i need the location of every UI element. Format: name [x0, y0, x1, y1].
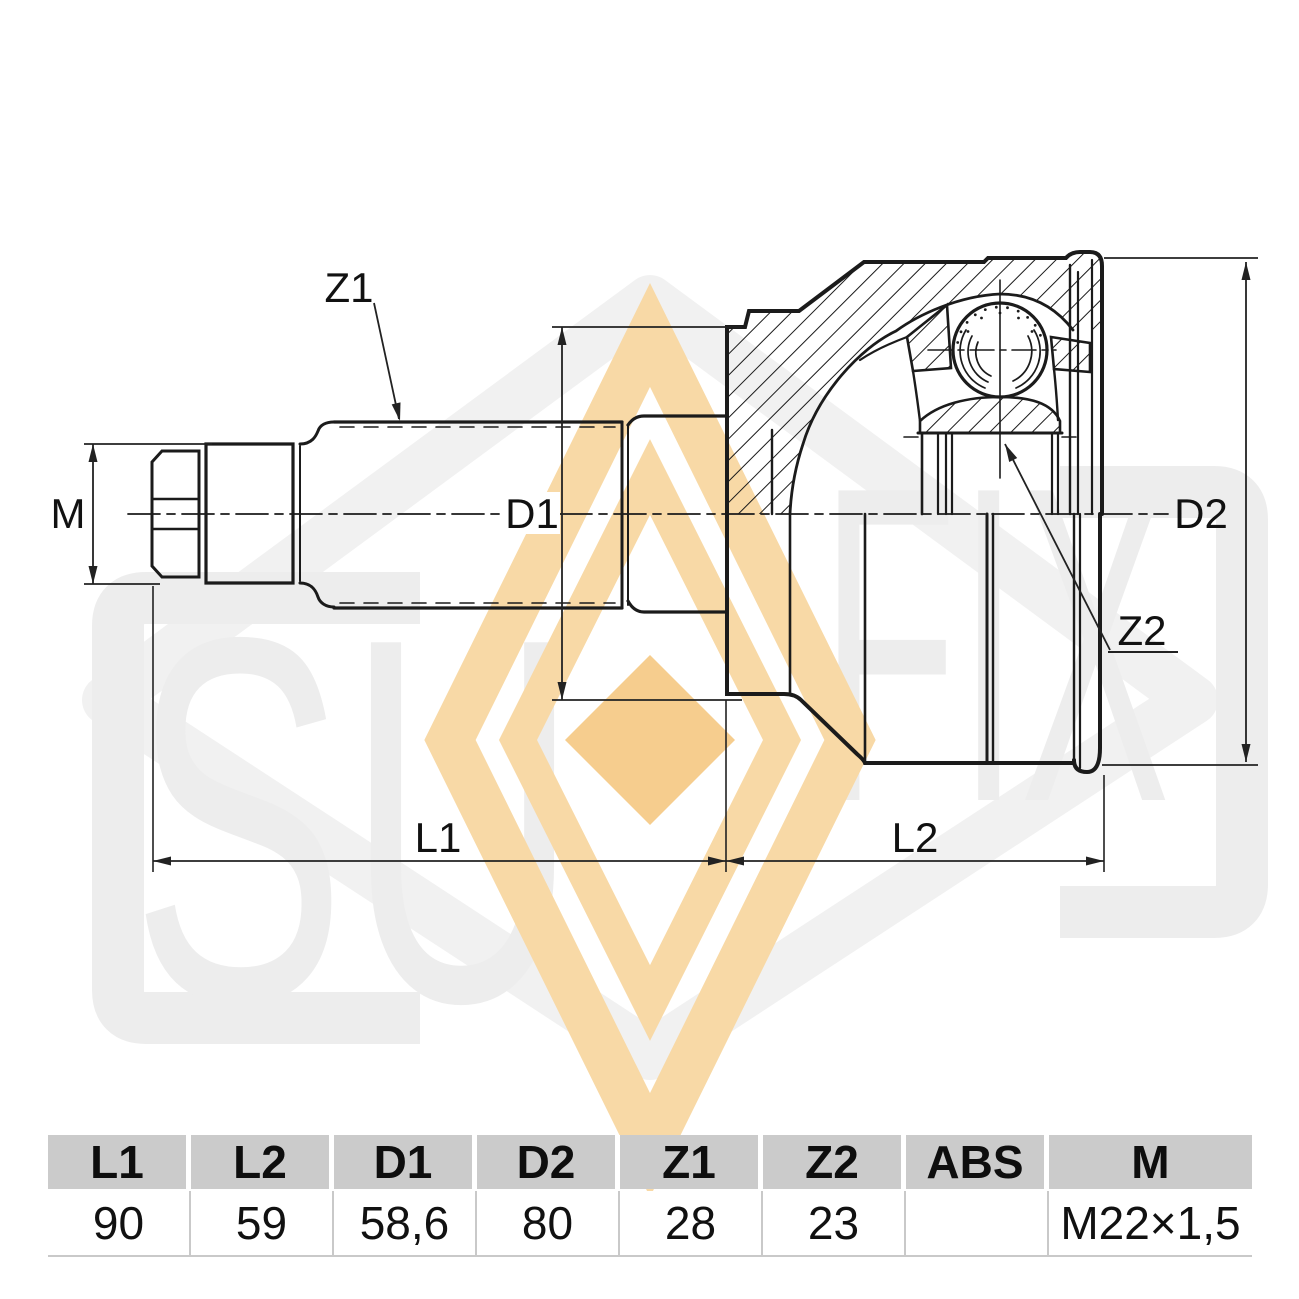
- spec-table-value-cell: M22×1,5: [1049, 1191, 1252, 1255]
- spec-table-value-row: 90 59 58,6 80 28 23 M22×1,5: [48, 1191, 1252, 1257]
- spec-table-header-cell: L2: [191, 1135, 334, 1189]
- spec-table-value-cell: 80: [477, 1191, 620, 1255]
- label-d2: D2: [1174, 490, 1228, 537]
- spec-table-header-cell: D2: [477, 1135, 620, 1189]
- watermark-orange-solid-diamond: [565, 655, 735, 825]
- cage-right-section: [1051, 337, 1090, 372]
- spec-table-header-cell: L1: [48, 1135, 191, 1189]
- spec-table-value-cell: 59: [191, 1191, 334, 1255]
- cv-joint-diagram-page: SU FIX: [0, 0, 1299, 1299]
- label-l1: L1: [415, 814, 462, 861]
- spec-table-value-cell: 58,6: [334, 1191, 477, 1255]
- leader-z1: [374, 303, 399, 419]
- spec-table-header-cell: Z2: [763, 1135, 906, 1189]
- spec-table-header-row: L1 L2 D1 D2 Z1 Z2 ABS M: [48, 1135, 1252, 1187]
- spec-table-header-cell: ABS: [906, 1135, 1049, 1189]
- label-z2: Z2: [1117, 607, 1166, 654]
- spec-table-value-cell: [906, 1191, 1049, 1255]
- spec-table-header-cell: Z1: [620, 1135, 763, 1189]
- spec-table-header-cell: M: [1049, 1135, 1252, 1189]
- spec-table-header-cell: D1: [334, 1135, 477, 1189]
- spec-table-value-cell: 28: [620, 1191, 763, 1255]
- label-m: M: [51, 490, 86, 537]
- label-z1: Z1: [324, 264, 373, 311]
- spec-table: L1 L2 D1 D2 Z1 Z2 ABS M 90 59 58,6 80 28…: [48, 1135, 1252, 1257]
- spec-table-value-cell: 23: [763, 1191, 906, 1255]
- label-d1: D1: [505, 490, 559, 537]
- label-l2: L2: [892, 814, 939, 861]
- spec-table-value-cell: 90: [48, 1191, 191, 1255]
- cv-joint-technical-drawing: SU FIX: [0, 0, 1299, 1299]
- sufix-watermark: SU FIX: [107, 300, 1242, 1145]
